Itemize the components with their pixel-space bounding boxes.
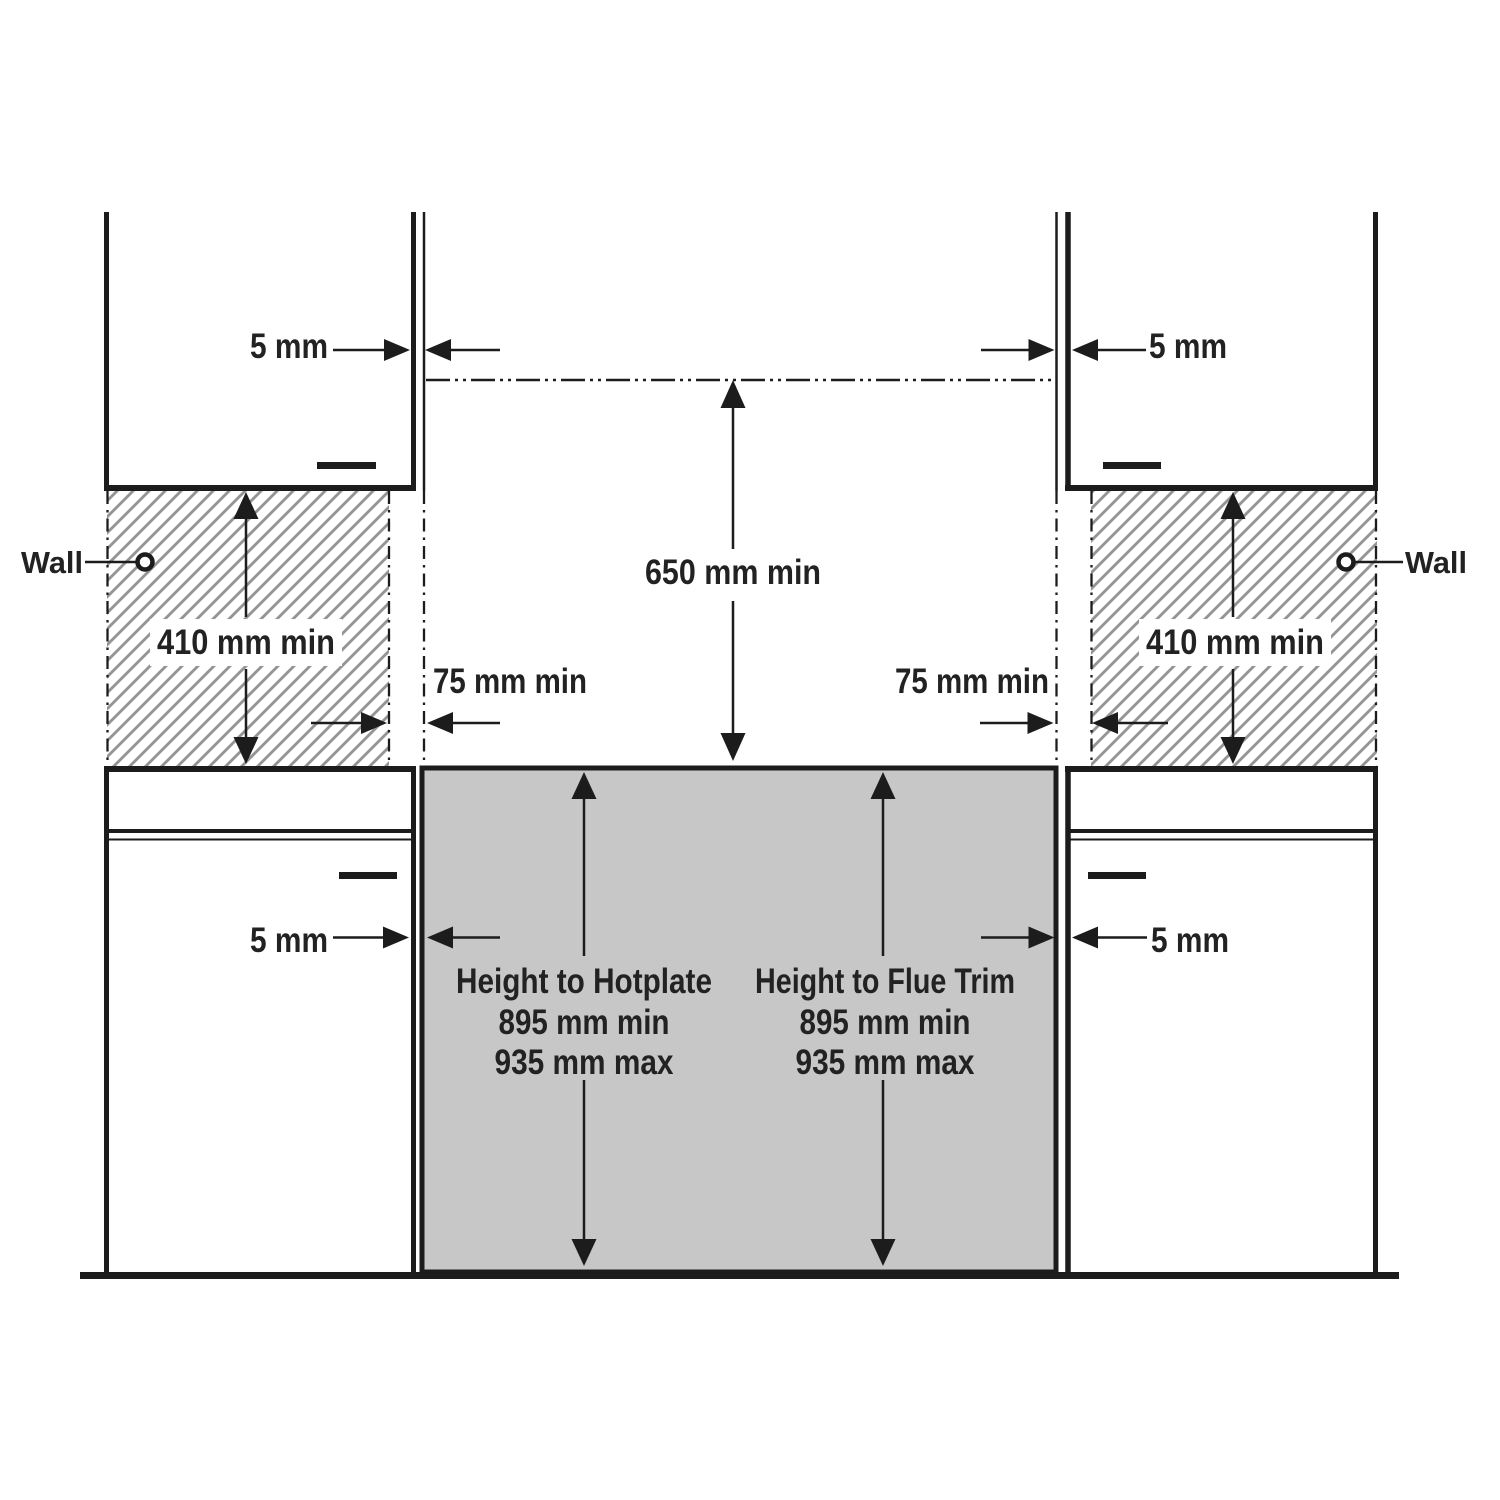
- svg-text:5 mm: 5 mm: [250, 921, 328, 960]
- svg-text:Height to Flue Trim: Height to Flue Trim: [755, 962, 1015, 1001]
- svg-text:75 mm min: 75 mm min: [433, 662, 587, 701]
- svg-text:895 mm min: 895 mm min: [499, 1003, 670, 1042]
- svg-text:895 mm min: 895 mm min: [800, 1003, 971, 1042]
- svg-text:75 mm min: 75 mm min: [895, 662, 1049, 701]
- svg-text:Wall: Wall: [1405, 545, 1467, 580]
- svg-text:5 mm: 5 mm: [1149, 327, 1227, 366]
- svg-text:Wall: Wall: [21, 545, 83, 580]
- svg-text:410 mm min: 410 mm min: [1146, 623, 1324, 662]
- svg-text:5 mm: 5 mm: [250, 327, 328, 366]
- svg-text:935 mm max: 935 mm max: [796, 1043, 975, 1082]
- svg-text:935 mm max: 935 mm max: [495, 1043, 674, 1082]
- svg-text:5 mm: 5 mm: [1151, 921, 1229, 960]
- svg-text:Height to Hotplate: Height to Hotplate: [456, 962, 712, 1001]
- svg-text:650 mm min: 650 mm min: [645, 553, 821, 592]
- svg-text:410 mm min: 410 mm min: [157, 623, 335, 662]
